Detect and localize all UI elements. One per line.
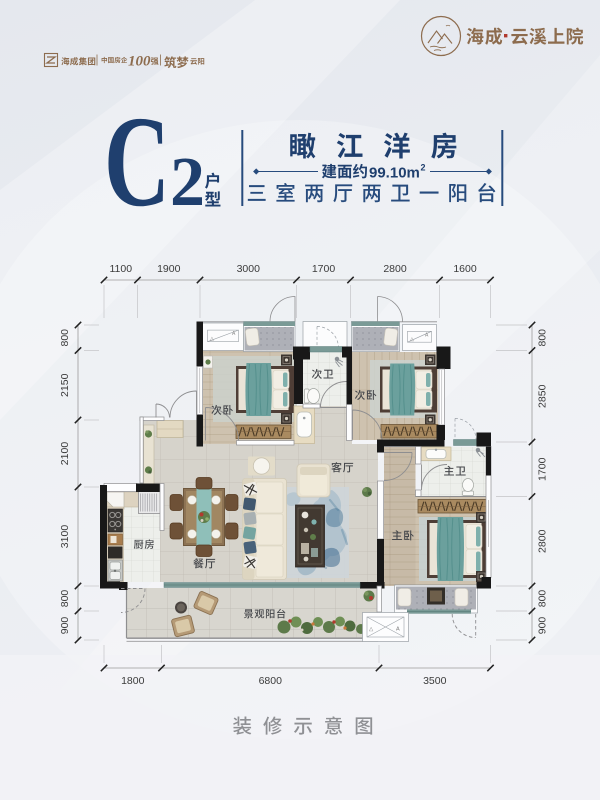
svg-text:2800: 2800 bbox=[383, 263, 407, 275]
svg-text:1900: 1900 bbox=[157, 263, 181, 275]
svg-text:△: △ bbox=[210, 336, 214, 342]
svg-text:99.10m: 99.10m bbox=[369, 165, 420, 182]
svg-text:800: 800 bbox=[537, 590, 549, 608]
svg-text:A: A bbox=[396, 627, 400, 633]
svg-text:3500: 3500 bbox=[423, 675, 447, 687]
svg-text:2100: 2100 bbox=[59, 442, 71, 466]
svg-text:2850: 2850 bbox=[537, 384, 549, 408]
svg-text:2800: 2800 bbox=[537, 529, 549, 553]
svg-text:800: 800 bbox=[59, 590, 71, 608]
svg-text:1100: 1100 bbox=[109, 263, 132, 275]
svg-text:3100: 3100 bbox=[59, 525, 71, 549]
svg-text:100: 100 bbox=[128, 54, 151, 70]
svg-text:900: 900 bbox=[537, 617, 549, 635]
svg-text:3000: 3000 bbox=[237, 263, 261, 275]
svg-text:1600: 1600 bbox=[453, 263, 477, 275]
svg-text:2150: 2150 bbox=[59, 373, 71, 397]
svg-text:△: △ bbox=[410, 337, 414, 343]
svg-text:6800: 6800 bbox=[259, 675, 283, 687]
svg-text:800: 800 bbox=[537, 329, 549, 347]
svg-text:1700: 1700 bbox=[312, 263, 336, 275]
svg-text:2: 2 bbox=[170, 144, 205, 221]
svg-text:C: C bbox=[104, 90, 170, 234]
svg-text:2: 2 bbox=[421, 163, 426, 173]
svg-text:900: 900 bbox=[59, 617, 71, 635]
svg-text:1800: 1800 bbox=[121, 675, 145, 687]
svg-text:800: 800 bbox=[59, 329, 71, 347]
svg-text:1700: 1700 bbox=[537, 457, 549, 481]
